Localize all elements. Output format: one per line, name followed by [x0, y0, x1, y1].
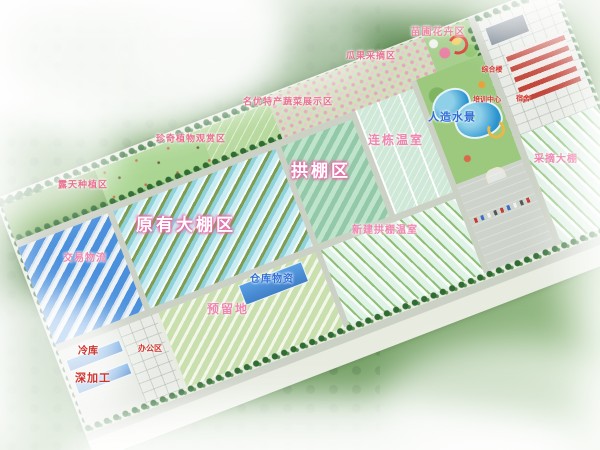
label-veg-display: 名优特产蔬菜展示区 [243, 99, 333, 108]
label-office-area: 办公区 [138, 345, 162, 353]
label-reserved-land: 预留地 [207, 303, 249, 315]
label-warehouse-supplies: 仓库物资 [250, 275, 294, 285]
label-trade-logistics: 交易物流 [63, 254, 107, 264]
label-water-feature: 人造水景 [428, 112, 476, 123]
label-cold-storage: 冷库 [78, 347, 98, 357]
aerial-masterplan-rendering: 露天种植区 珍奇植物观赏区 名优特产蔬菜展示区 瓜果采摘区 苗圃花卉区 综合楼 … [0, 0, 600, 450]
label-new-arch-greenhouse: 新建拱棚温室 [352, 226, 418, 236]
label-layer: 露天种植区 珍奇植物观赏区 名优特产蔬菜展示区 瓜果采摘区 苗圃花卉区 综合楼 … [0, 0, 600, 450]
label-dormitory: 宿舍 [516, 96, 530, 103]
label-deep-processing: 深加工 [75, 373, 111, 384]
label-fruit-picking: 瓜果采摘区 [346, 53, 396, 62]
label-nursery-flower: 苗圃花卉区 [411, 28, 466, 38]
label-open-planting: 露天种植区 [58, 182, 108, 191]
label-picking-greenhouse: 采摘大棚 [534, 155, 578, 165]
label-rare-plants: 珍奇植物观赏区 [156, 136, 226, 145]
label-multispan-greenhouse: 连栋温室 [368, 134, 424, 146]
label-training-center: 培训中心 [473, 97, 501, 104]
label-arch-shed-area: 拱棚区 [291, 164, 351, 181]
label-existing-greenhouse-area: 原有大棚区 [136, 218, 236, 235]
label-admin-building: 综合楼 [482, 67, 503, 74]
